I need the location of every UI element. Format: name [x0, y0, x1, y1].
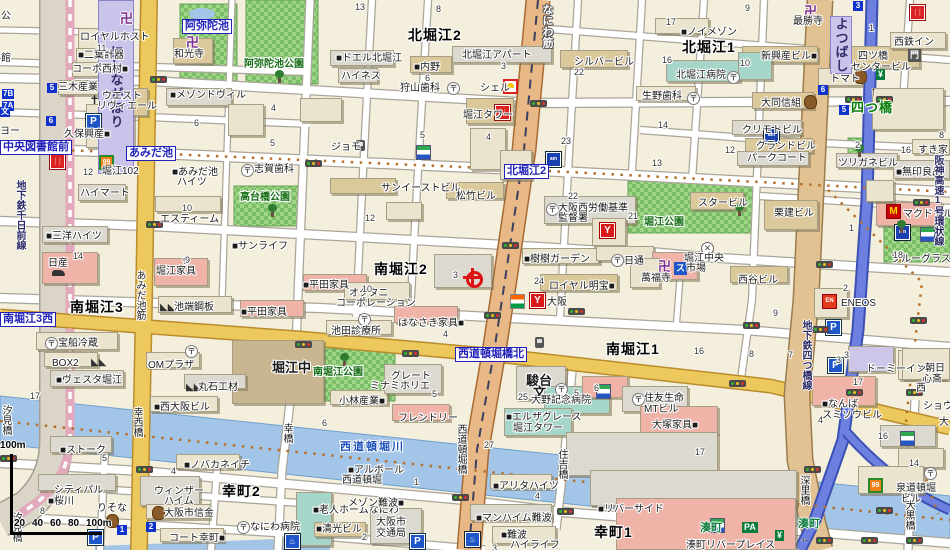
building-label: ハイネス — [341, 71, 381, 82]
block-number: 5 — [102, 453, 107, 464]
building-label: BOX2 — [52, 358, 79, 369]
building-label: 狩山歯科 — [400, 83, 440, 94]
block-number: 18 — [893, 250, 903, 261]
intersection-label-green: 四つ橋 — [851, 97, 893, 116]
intersection-label[interactable]: 西道頓堀橋北 — [455, 347, 527, 362]
building-label: ■エルザグレース — [506, 412, 582, 423]
signal-icon — [0, 455, 17, 462]
building-label: メゾン難波■ — [348, 498, 404, 509]
intersection-label[interactable]: 北堀江2 — [504, 164, 549, 179]
building-label: 日産 — [48, 258, 68, 269]
gas-icon — [535, 337, 544, 348]
park-icon: P — [86, 114, 101, 129]
block-number: 8 — [436, 4, 441, 15]
building-label: 交通局 — [376, 528, 406, 539]
building-block — [296, 492, 332, 546]
bridge-label: 住吉橋 — [556, 449, 567, 479]
station-exit-number[interactable]: 5 — [47, 83, 57, 93]
station-exit-number[interactable]: 2 — [146, 522, 156, 532]
signal-icon — [913, 199, 930, 206]
park-label: 阿弥陀池公園 — [244, 59, 304, 70]
building-label: ■アリタハイツ — [493, 481, 559, 492]
block-number: 25 — [518, 392, 528, 403]
signal-icon — [305, 160, 322, 167]
signal-icon — [484, 312, 501, 319]
block-number: 13 — [355, 2, 365, 13]
building-label: 住友生命 — [644, 393, 684, 404]
block-number: 2 — [362, 532, 367, 543]
district-label: 幸町1 — [594, 527, 633, 538]
building-label: 大野記念病院 — [531, 395, 591, 406]
post-icon: 〒 — [237, 521, 250, 534]
building-label: ■桜川 — [48, 496, 74, 507]
building-label: グランドビル — [756, 141, 816, 152]
block-number: 9 — [185, 255, 190, 266]
building-label: ■マンハイム難波 — [476, 513, 552, 524]
building-label: コーポ西村■ — [72, 64, 128, 75]
arrleft-icon: ← — [799, 532, 812, 545]
edge-label-fragment: 大 — [939, 417, 949, 428]
building-label: ジョモ — [331, 142, 361, 153]
building-label: コート幸町■ — [169, 533, 225, 544]
district-label: 幸町2 — [222, 486, 261, 497]
eneos-icon: EN — [822, 294, 837, 309]
temple-label: 和光寺 — [174, 49, 204, 60]
seven-icon — [510, 294, 525, 309]
block-number: 14 — [658, 120, 668, 131]
block-number: 4 — [486, 132, 491, 143]
tree-icon — [266, 204, 279, 217]
bridge-label: 幸西橋 — [131, 407, 142, 437]
map-center-marker — [463, 268, 482, 287]
edge-label-fragment: 館 — [1, 53, 11, 64]
building-label: はなさき家具■ — [398, 318, 464, 329]
transit-tag: ¥ — [775, 530, 784, 541]
building-label: 泉道頓堀 — [896, 483, 936, 494]
building-label: ドーミーイン — [866, 364, 926, 375]
district-label: 北堀江1 — [682, 42, 736, 53]
transit-tag: PA — [742, 522, 758, 533]
building-label: 久保興産■ — [64, 129, 110, 140]
intersection-label[interactable]: 中央図書館前 — [0, 140, 72, 155]
famima-icon — [416, 145, 431, 160]
signal-icon — [743, 322, 760, 329]
building-label: ■サンライフ — [232, 241, 288, 252]
post-icon: 〒 — [45, 337, 58, 350]
block-number: 17 — [853, 377, 863, 388]
block-number: 11 — [97, 43, 106, 54]
signal-icon — [906, 537, 923, 544]
blue-icon: ♨ — [285, 534, 300, 549]
station-exit-number[interactable]: 文 — [0, 107, 10, 117]
signal-icon — [876, 507, 893, 514]
building-label: シェル — [480, 83, 510, 94]
building-label: 北堀江病院 — [676, 70, 726, 81]
bridge-label: 幸橋 — [281, 423, 292, 443]
temple-label: 最勝寺 — [793, 16, 823, 27]
temple-icon: 卍 — [658, 260, 671, 273]
building-label: ■平田家具 — [303, 280, 349, 291]
building-label: ■ヴェスタ堀江 — [56, 375, 122, 386]
bank-icon — [804, 95, 817, 109]
block-number: 8 — [40, 506, 45, 517]
building-label: ロイヤル明宝■ — [549, 281, 615, 292]
block-number: 3 — [453, 270, 458, 281]
block-number: 16 — [878, 431, 888, 442]
signal-icon — [910, 317, 927, 324]
building-label: エスティーム — [160, 214, 219, 225]
famima-icon — [900, 431, 915, 446]
building-label: ■ノバカネイチ — [184, 460, 250, 471]
building-label: 池田診療所 — [331, 326, 381, 337]
building-label: ■ストーク — [60, 445, 106, 456]
building-label: 西道頓堀 — [342, 475, 382, 486]
building-label: 大阪市信金 — [164, 508, 214, 519]
station-exit-number[interactable]: 5 — [839, 105, 849, 115]
road-name-label: 地下鉄四つ橋線 — [800, 320, 811, 390]
intersection-label[interactable]: 南堀江3西 — [0, 312, 56, 327]
building-label: 堀江102 — [102, 166, 139, 177]
building-label: ■平田家具 — [241, 307, 287, 318]
road-name-label: 阪神高速1号環状線 — [932, 155, 943, 246]
nn-icon: 99 — [868, 478, 883, 493]
building-label: OMプラザ — [148, 360, 194, 371]
tree-icon — [273, 70, 286, 83]
post-icon: 〒 — [241, 164, 254, 177]
block-number: 16 — [662, 55, 672, 66]
building-label: 丸石工材 — [198, 382, 238, 393]
building-label: ■樹樹ガーデン — [524, 254, 590, 265]
building-label: ツリガネビル — [838, 158, 898, 169]
station-band[interactable]: よつばし — [830, 16, 852, 74]
building-label: MTビル — [644, 404, 678, 415]
block-number: 6 — [425, 73, 430, 84]
station-exit-number[interactable]: 6 — [818, 85, 828, 95]
edge-label-fragment: 西 — [916, 383, 926, 394]
block-number: 16 — [694, 346, 704, 357]
building-label: パークコート — [747, 153, 807, 164]
building-label: ■ノイメゾン — [681, 27, 737, 38]
signal-icon — [804, 466, 821, 473]
building-block — [386, 202, 422, 220]
road-name-label: なにわ筋 — [541, 4, 552, 48]
building-label: ■三洋ハイツ — [46, 231, 102, 242]
building-label: ハイム — [164, 496, 194, 507]
tree-icon — [338, 353, 351, 366]
road-name-label: 地下鉄千日前線 — [14, 180, 25, 250]
block-number: 10 — [740, 58, 750, 69]
station-name-green: 湊町 — [798, 515, 820, 531]
station-name-green: 湊町 — [700, 519, 722, 535]
block-number: 3 — [492, 543, 497, 550]
building-label: リヴィエール — [97, 101, 157, 112]
post-icon: 〒 — [727, 71, 740, 84]
building-label: クリモトビル — [742, 125, 802, 136]
building-label: 大阪市 — [376, 517, 406, 528]
bridge-label: 大黒橋 — [903, 500, 914, 530]
signal-icon — [295, 341, 312, 348]
station-exit-number[interactable]: 7B — [2, 89, 14, 99]
block-number: 14 — [909, 458, 919, 469]
block-number: 12 — [725, 145, 735, 156]
yred-icon: Y — [530, 293, 545, 308]
building-label: 新興産ビル■ — [761, 51, 817, 62]
building-label: 小林産業■ — [339, 396, 385, 407]
intersection-label[interactable]: 阿弥陀池 — [182, 19, 232, 34]
building-label: シティパル — [54, 485, 103, 496]
rest-icon: ᛁᛁ — [50, 154, 65, 169]
signal-icon — [402, 350, 419, 357]
building-label: 三木産業 — [58, 82, 98, 93]
signal-icon — [530, 100, 547, 107]
district-label: 南堀江3 — [70, 302, 124, 313]
building-block — [300, 98, 342, 122]
block-number: 2 — [843, 283, 848, 294]
station-exit-number[interactable]: 6 — [46, 116, 56, 126]
rest-icon: ᛁᛁ — [910, 5, 925, 20]
building-label: ENEOS — [841, 298, 876, 309]
building-label: ■リバーサイド — [598, 504, 664, 515]
post-icon: 〒 — [611, 254, 624, 267]
building-label: ロイヤルホスト — [80, 32, 150, 43]
block-number: 3 — [836, 355, 841, 366]
signal-icon — [136, 466, 153, 473]
intersection-label[interactable]: あみだ池 — [126, 146, 176, 161]
building-label: 大同信組 — [761, 98, 801, 109]
building-label: 監督署 — [558, 213, 588, 224]
building-label: ■ドエル北堀江 — [336, 53, 402, 64]
building-label: ■清光ビル — [316, 524, 362, 535]
bridge-label: 西道頓堀橋 — [455, 424, 466, 474]
building-label: 池端鋼板 — [174, 302, 214, 313]
park-label: 堀江公園 — [644, 217, 684, 228]
building-label: ■なんば — [822, 399, 858, 410]
block-number: 8 — [939, 130, 944, 141]
signal-icon — [452, 494, 469, 501]
block-number: 9 — [745, 3, 750, 14]
park-label: 南堀江公園 — [313, 367, 363, 378]
block-number: 9 — [773, 308, 778, 319]
block-number: 13 — [652, 158, 662, 169]
block-number: 6 — [194, 118, 199, 129]
signal-icon — [502, 242, 519, 249]
signal-icon — [846, 389, 863, 396]
school-label: 堀江中 — [272, 362, 311, 373]
building-label: 四ツ橋 — [858, 51, 888, 62]
transit-tag: ¥ — [876, 69, 885, 80]
blue-icon: ♨ — [465, 532, 480, 547]
building-label: 松竹ビル — [456, 191, 496, 202]
temple-icon: 卍 — [120, 12, 133, 25]
building-label: ハイマート — [80, 188, 130, 199]
block-number: 4 — [443, 329, 448, 340]
building-label: スミソウビル — [822, 410, 882, 421]
block-number: 7 — [788, 350, 793, 361]
station-exit-number[interactable]: 3 — [853, 1, 863, 11]
block-number: 4 — [535, 491, 540, 502]
block-number: 4 — [171, 466, 176, 477]
block-number: 4 — [271, 103, 276, 114]
block-number: 5 — [270, 138, 275, 149]
tree-icon — [895, 220, 908, 233]
river-label: 西道頓堀川 — [340, 442, 405, 453]
block-number: 8 — [749, 349, 754, 360]
bridge-label: 汐見橋 — [10, 512, 21, 542]
block-number: 6 — [322, 418, 327, 429]
signal-icon — [861, 537, 878, 544]
map-canvas[interactable]: にしながほりよつばし 北堀江2北堀江1南堀江2南堀江3南堀江1幸町2幸町1堀江中… — [0, 0, 950, 550]
block-number: 4 — [818, 415, 823, 426]
hotel-icon: 門 — [908, 49, 921, 62]
block-number: 12 — [83, 167, 93, 178]
park-icon: P — [88, 530, 103, 545]
signal-icon — [150, 76, 167, 83]
edge-label-fragment: 公 — [1, 11, 11, 22]
building-label: 堀江タワー — [463, 110, 513, 121]
yred-icon: Y — [600, 223, 615, 238]
building-label: なにわ病院 — [250, 522, 300, 533]
block-number: 5 — [574, 388, 579, 399]
building-label: フレンドリー — [398, 413, 458, 424]
edge-label-fragment: ヨー — [0, 126, 20, 137]
signal-icon — [557, 508, 574, 515]
signal-icon — [816, 537, 833, 544]
building-label: ■メゾンドヴィル — [170, 90, 246, 101]
building-label: サンイーストビル — [381, 183, 461, 194]
block-number: 2 — [855, 140, 860, 151]
signal-icon — [816, 261, 833, 268]
building-label: ハイツ — [177, 177, 207, 188]
signal-icon — [812, 326, 829, 333]
post-icon: 〒 — [358, 313, 371, 326]
building-label: ミナミホリエ — [370, 381, 430, 392]
block-number: 10 — [182, 203, 192, 214]
block-number: 16 — [901, 145, 911, 156]
building-label: 北堀江アパート — [462, 50, 532, 61]
district-label: 南堀江1 — [606, 344, 660, 355]
building-label: ショウザン — [923, 401, 950, 412]
building-label: 日通 — [624, 256, 644, 267]
building-label: 生野歯科 — [642, 91, 682, 102]
factory-icon: ◣◣ — [91, 356, 104, 369]
block-number: 5 — [432, 389, 437, 400]
building-label: 大塚家具■ — [652, 420, 698, 431]
building-label: 市場 — [686, 263, 706, 274]
block-number: 17 — [666, 17, 676, 28]
post-icon: 〒 — [447, 82, 460, 95]
signal-icon — [568, 308, 585, 315]
building-label: 堀江家具 — [156, 266, 196, 277]
signal-icon — [729, 380, 746, 387]
road-name-label: あみだ池筋 — [134, 270, 145, 320]
block-number: 12 — [365, 213, 375, 224]
post-icon: 〒 — [185, 345, 198, 358]
building-label: 宝船冷蔵 — [58, 338, 98, 349]
block-number: 14 — [73, 251, 83, 262]
bridge-label: 深里橋 — [798, 475, 809, 505]
bridge-label: 汐見橋 — [0, 405, 11, 435]
park-label: 高台橋公園 — [240, 192, 290, 203]
building-label: ■内野 — [414, 62, 440, 73]
temple-label: 萬福寺 — [641, 273, 671, 284]
building-label: 志賀歯科 — [254, 164, 294, 175]
building-label: 堀江タワー — [513, 423, 563, 434]
block-number: 27 — [484, 440, 494, 451]
block-number: 6 — [594, 383, 599, 394]
mcd-icon: M — [886, 204, 901, 219]
building-block — [898, 448, 944, 468]
block-number: 5 — [420, 130, 425, 141]
building-label: 大阪 — [547, 297, 567, 308]
building-block — [228, 104, 264, 136]
building-label: トマト — [830, 74, 860, 85]
block-number: 17 — [30, 391, 40, 402]
building-label: 西谷ビル — [738, 275, 778, 286]
block-number: 22 — [568, 191, 578, 202]
temple-icon: 卍 — [186, 36, 199, 49]
block-number: 22 — [574, 67, 584, 78]
station-exit-number[interactable]: 1 — [117, 525, 127, 535]
building-label: 西鉄イン — [894, 37, 934, 48]
block-number: 1 — [869, 23, 874, 34]
block-number: 1 — [849, 223, 854, 234]
park-icon: P — [410, 534, 425, 549]
block-number: 3 — [844, 350, 849, 361]
post-icon: 〒 — [687, 92, 700, 105]
building-label: ■西大阪ビル — [154, 402, 210, 413]
building-label: コーポレーション — [336, 298, 416, 309]
building-block — [866, 180, 894, 202]
building-label: ハイライフ — [510, 540, 560, 550]
block-number: 1 — [414, 477, 419, 488]
building-label: 湊町リバープレイス — [686, 540, 775, 550]
block-number: 17 — [695, 447, 705, 458]
building-label: スタービル — [698, 198, 748, 209]
post-icon: 〒 — [924, 467, 937, 480]
block-number: 10 — [362, 284, 372, 295]
factory-icon: ◣◣ — [160, 301, 173, 314]
building-label: 栗建ビル — [774, 208, 814, 219]
block-number: 24 — [534, 276, 544, 287]
building-label: りそな — [97, 503, 127, 514]
block-number: 23 — [561, 136, 571, 147]
district-label: 北堀江2 — [408, 30, 462, 41]
block-number: 3 — [501, 61, 506, 72]
district-label: 南堀江2 — [374, 264, 428, 275]
block-number: 21 — [628, 211, 638, 222]
